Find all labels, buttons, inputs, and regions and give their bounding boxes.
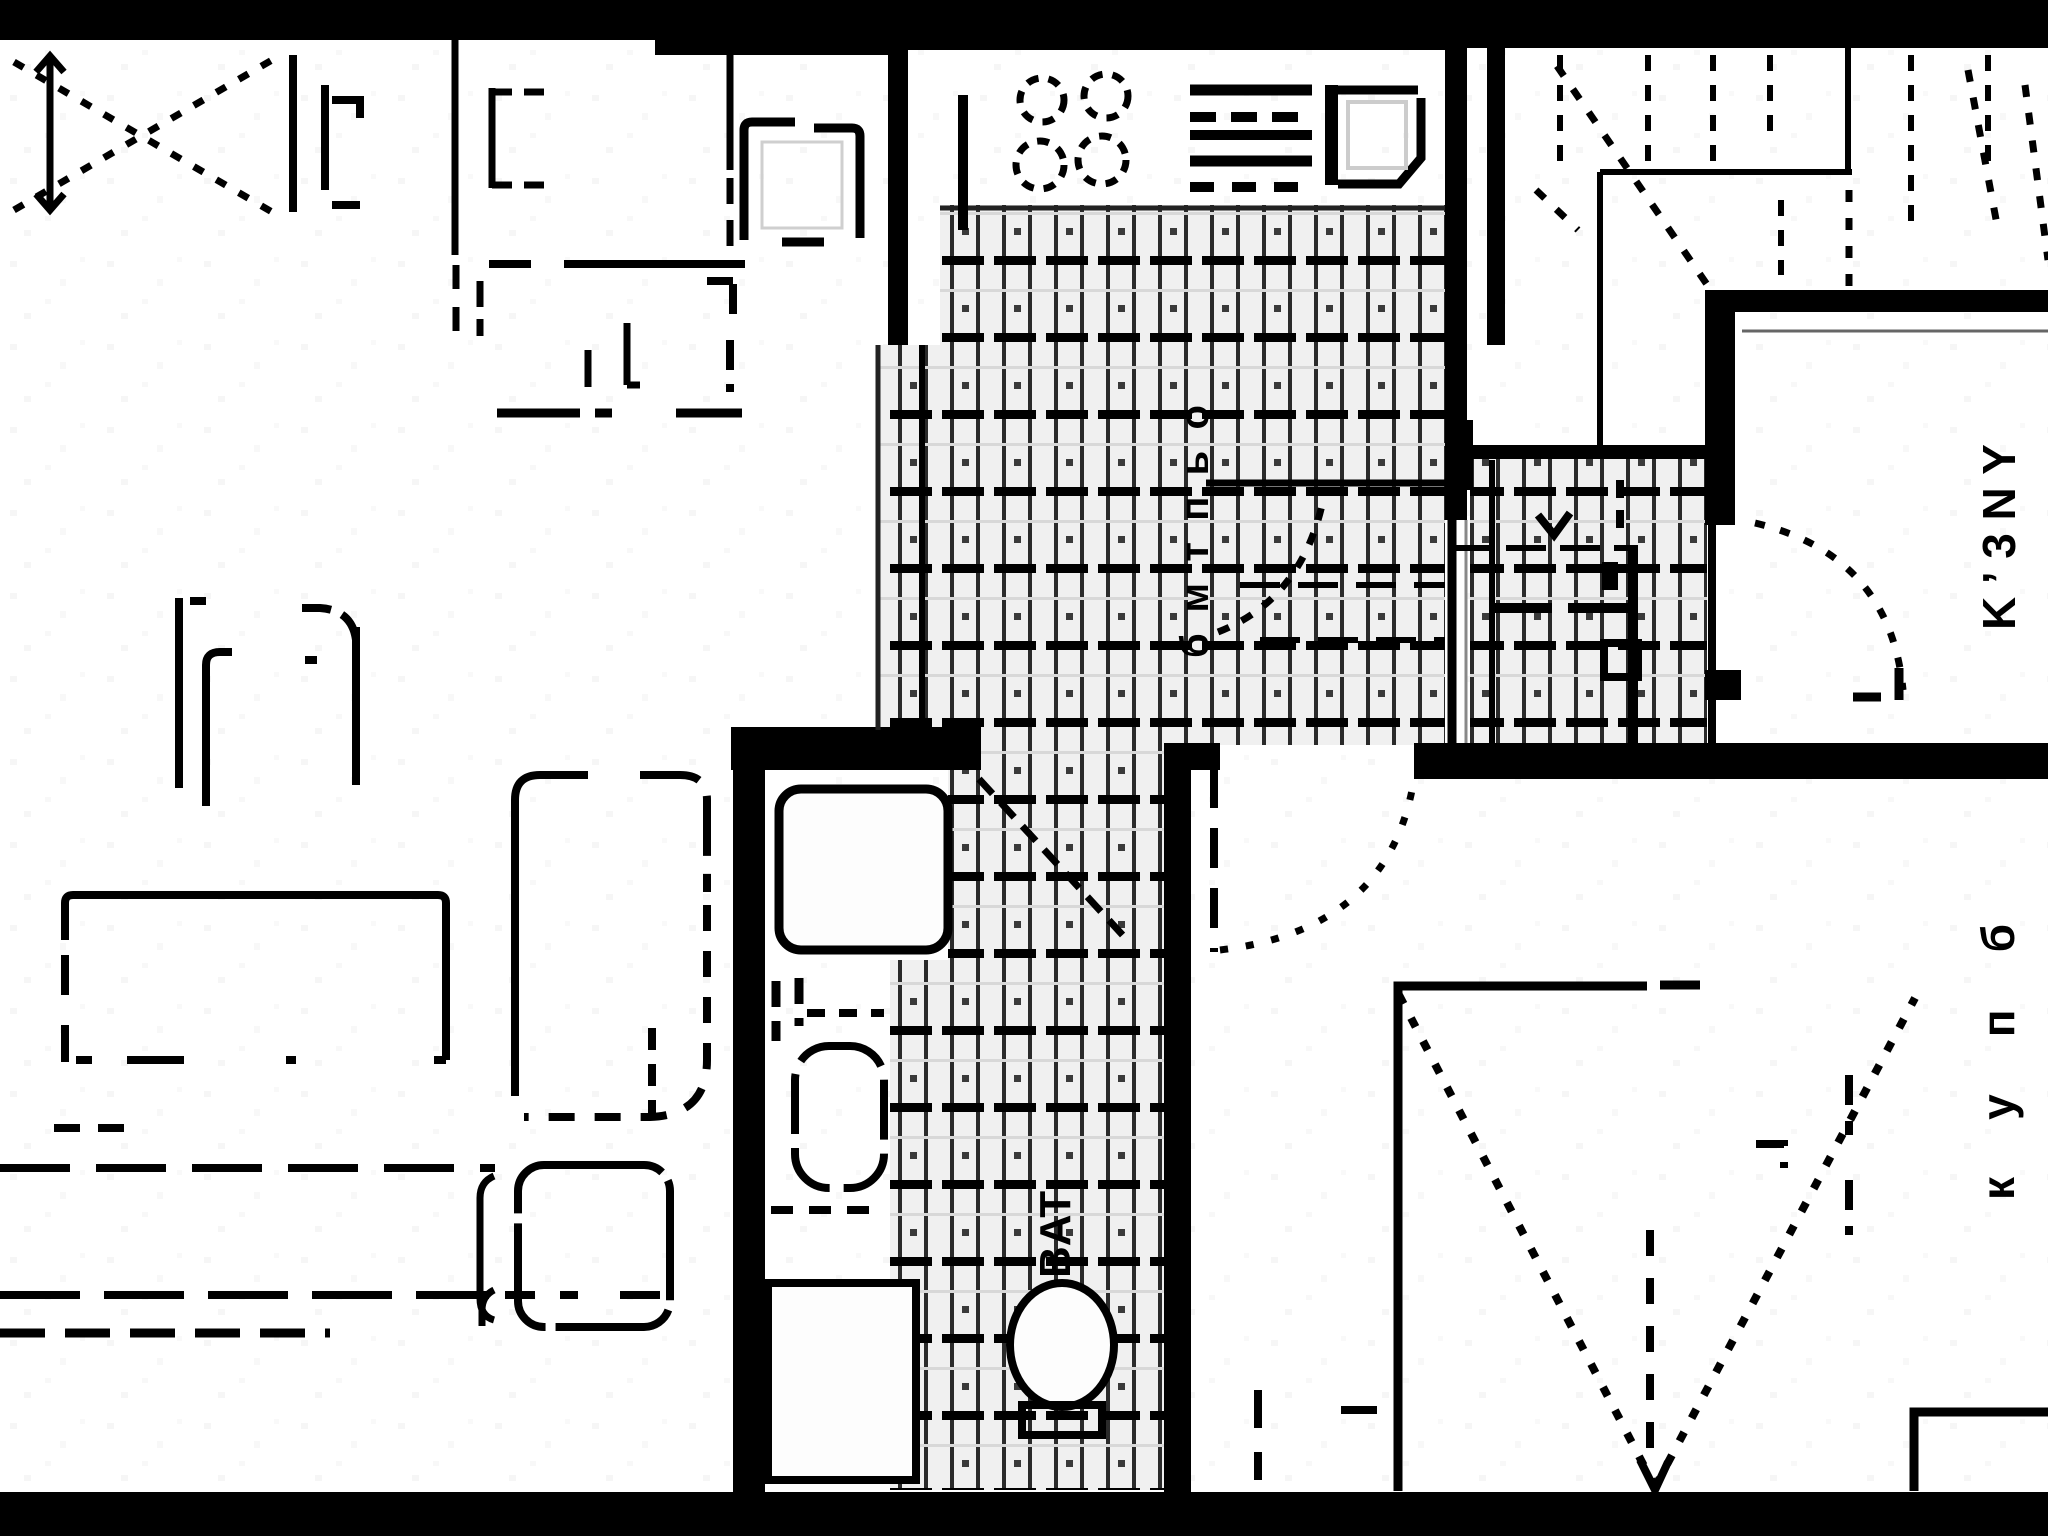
svg-text:K’3NY: K’3NY [1973,440,2025,630]
svg-text:BAT: BAT [1031,1191,1080,1278]
